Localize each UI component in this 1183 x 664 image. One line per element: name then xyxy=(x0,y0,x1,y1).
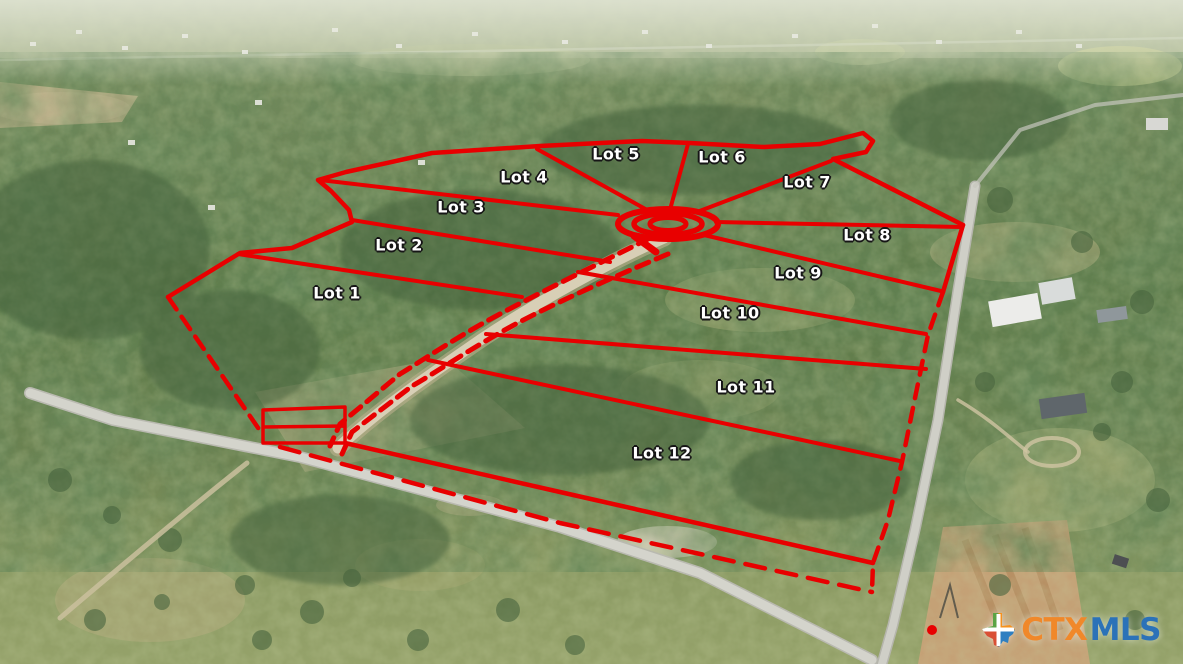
aerial-photo: Lot 1Lot 2Lot 3Lot 4Lot 5Lot 6Lot 7Lot 8… xyxy=(0,0,1183,664)
watermark-prefix: CTX xyxy=(1021,615,1087,646)
aerial-photo-artwork xyxy=(0,0,1183,664)
ctxmls-watermark: CTX MLS xyxy=(980,612,1161,648)
watermark-suffix: MLS xyxy=(1090,615,1161,646)
texas-state-plus-icon xyxy=(980,612,1016,648)
haze xyxy=(0,0,1183,85)
survey-marker-dot xyxy=(927,625,937,635)
